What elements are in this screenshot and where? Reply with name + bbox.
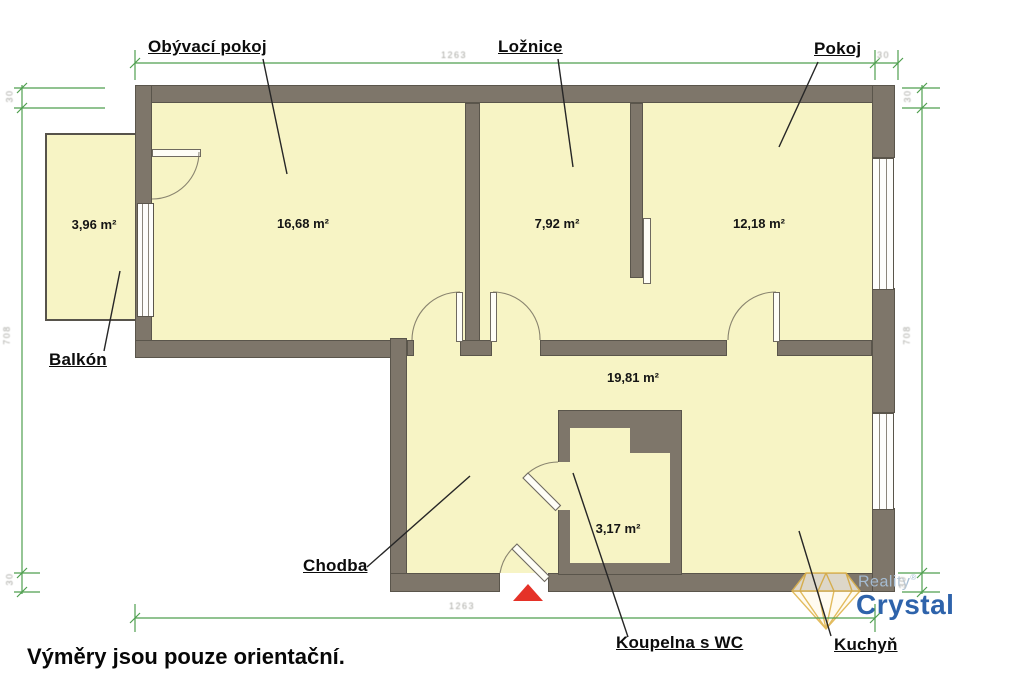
wall-top — [135, 85, 895, 103]
dim-left-wall-top: 30 — [5, 89, 15, 102]
loznice-pokoj-door-leaf — [643, 218, 651, 284]
label-pokoj: Pokoj — [814, 39, 861, 59]
area-koupelna: 3,17 m² — [596, 521, 641, 536]
registered-mark: ® — [910, 573, 916, 582]
area-chodba: 19,81 m² — [607, 370, 659, 385]
dim-bottom-width: 1263 — [449, 601, 475, 611]
dim-right-wall-bottom: 30 — [898, 575, 908, 588]
pokoj-window — [872, 158, 894, 290]
label-kuchyn: Kuchyň — [834, 635, 898, 655]
balcony-window — [137, 203, 154, 317]
wall-bottom-left-exterior — [135, 340, 407, 358]
dim-right-wall-top: 30 — [903, 89, 913, 102]
wall-right-b — [872, 288, 895, 413]
label-obyvaci-pokoj: Obývací pokoj — [148, 37, 267, 57]
kitchen-window — [872, 413, 894, 510]
area-pokoj: 12,18 m² — [733, 216, 785, 231]
dim-left-wall-bottom: 30 — [5, 572, 15, 585]
wall-right-a — [872, 85, 895, 158]
bathroom-door-opening — [556, 462, 572, 510]
wall-hall-left — [390, 338, 407, 592]
dim-top-width: 1263 — [441, 50, 467, 60]
wall-bottom-a — [390, 573, 500, 592]
wall-living-loznice — [465, 103, 480, 356]
bathroom-floor — [570, 428, 630, 563]
label-koupelna: Koupelna s WC — [616, 633, 743, 653]
balcony-door-leaf — [152, 149, 201, 157]
dim-right-height: 708 — [902, 325, 912, 345]
wall-halltop-d — [777, 340, 872, 356]
floor-plan: Reality® Crystal — [0, 0, 1024, 683]
wall-halltop-b — [460, 340, 492, 356]
wall-bottom-b — [548, 573, 895, 592]
dim-top-right-wall: 30 — [877, 50, 890, 60]
entrance-arrow — [513, 584, 543, 601]
wall-halltop-c — [540, 340, 727, 356]
bathroom-floor-2 — [630, 453, 670, 563]
pokoj-door-leaf — [773, 292, 780, 342]
wall-loznice-pokoj — [630, 103, 643, 278]
disclaimer-note: Výměry jsou pouze orientační. — [27, 644, 345, 670]
living-door-leaf — [456, 292, 463, 342]
logo-brand-bottom: Crystal — [856, 589, 954, 621]
label-balkon: Balkón — [49, 350, 107, 370]
wall-halltop-a — [407, 340, 414, 356]
area-loznice: 7,92 m² — [535, 216, 580, 231]
loznice-door-leaf — [490, 292, 497, 342]
area-balkon: 3,96 m² — [72, 217, 117, 232]
dim-left-height: 708 — [2, 325, 12, 345]
area-obyvaci: 16,68 m² — [277, 216, 329, 231]
label-loznice: Ložnice — [498, 37, 563, 57]
label-chodba: Chodba — [303, 556, 367, 576]
